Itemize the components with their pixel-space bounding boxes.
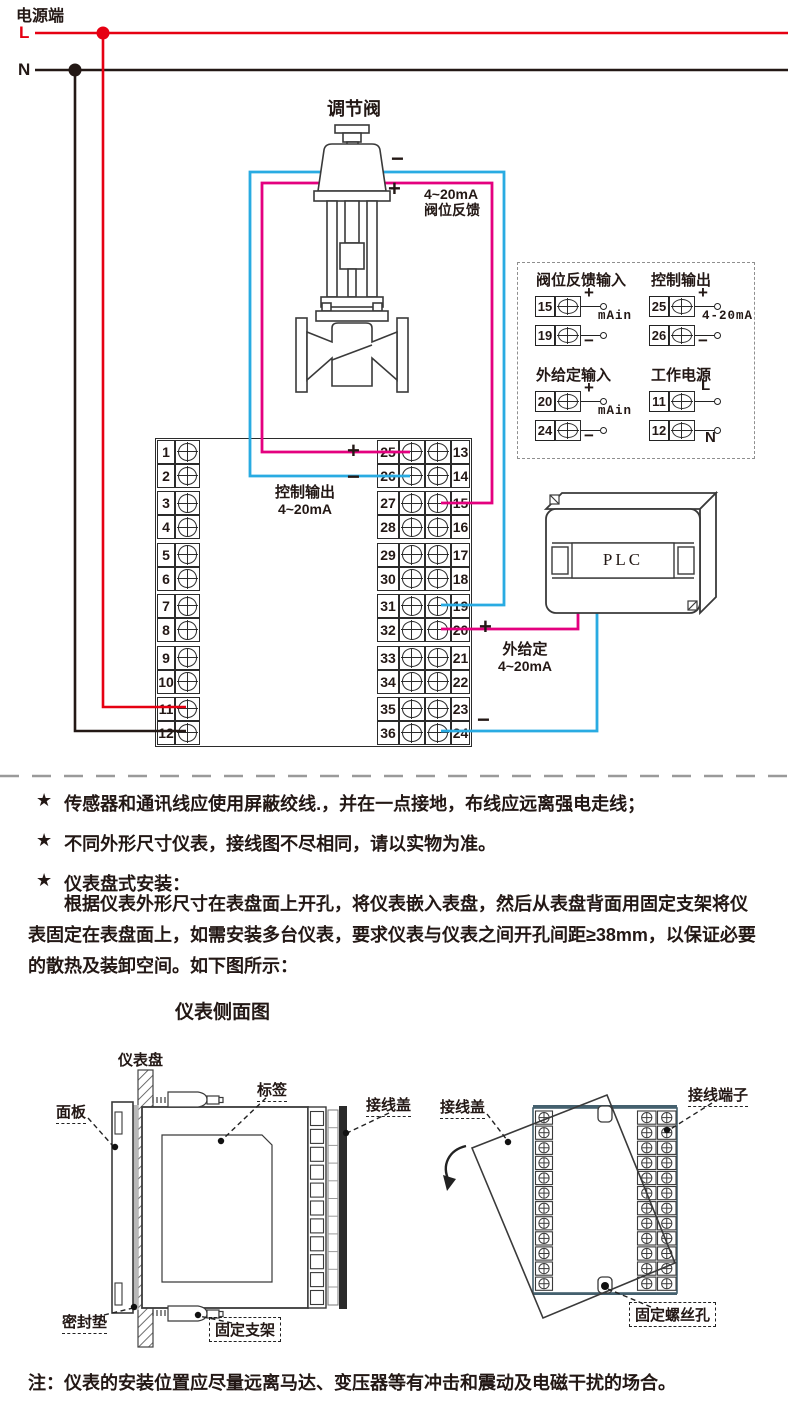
legend-plus-sign: + [584,378,594,398]
screw-terminal-icon [555,391,581,412]
legend-minus-sign: − [698,331,708,351]
screw-terminal-icon [425,464,451,488]
screw-terminal-icon [175,440,200,464]
wire-stub [695,306,714,307]
terminal-strip-squares [311,1112,324,1305]
installation-paragraph: 根据仪表外形尺寸在表盘面上开孔，将仪表嵌入表盘，然后从表盘背面用固定支架将仪表固… [28,889,765,982]
mounting-screw-top [153,1092,223,1107]
external-setpoint-range: 4~20mA [494,658,556,674]
terminal-row: 3321 [377,646,470,670]
plc-screw-slot [688,601,697,610]
screw-hole-dot [601,1282,609,1290]
screw-terminal-icon [175,594,200,618]
terminal-row: 2 [157,464,200,488]
valve-yoke-plate [321,297,383,307]
wire-end-circle [714,398,721,405]
screw-terminal-icon [175,721,200,745]
terminal-number: 12 [157,721,175,745]
junction-dot-l [97,27,110,40]
screw-terminal-icon [399,464,425,488]
legend-title-feedback-input: 阀位反馈输入 [536,269,626,290]
screw-hole-top [598,1106,612,1122]
label-sticker [162,1135,272,1282]
terminal-row: 4 [157,515,200,539]
screw-terminal-icon [425,646,451,670]
wire-stub [581,401,600,402]
legend-row-19: 19 [535,325,607,346]
screw-terminal-icon [425,594,451,618]
terminal-row: 3422 [377,670,470,694]
control-output-minus-sign: − [347,464,360,490]
screw-terminal-icon [399,646,425,670]
valve-coupler [340,243,364,269]
legend-annotation-range: 4-20mA [702,309,753,323]
screw-terminal-icon [175,515,200,539]
terminal-number: 36 [377,721,399,745]
terminal-number: 28 [377,515,399,539]
legend-row-15: 15 [535,296,607,317]
plc-side-block-left [552,547,568,574]
valve-body-detail [332,345,372,360]
note-text: 传感器和通讯线应使用屏蔽绞线.，并在一点接地，布线应远离强电走线； [64,790,645,816]
terminal-number: 35 [377,697,399,721]
valve-stem-top [335,125,369,133]
terminal-number: 32 [377,618,399,642]
legend-terminal-number: 20 [535,391,555,412]
cover-comb [328,1110,338,1305]
wire-end-circle [600,427,607,434]
legend-title-external-input: 外给定输入 [536,364,611,385]
screw-terminal-icon [399,567,425,591]
screw-terminal-icon [555,325,581,346]
terminal-row: 2816 [377,515,470,539]
rotate-arrow [446,1146,466,1181]
legend-row-11: 11 [649,391,721,412]
plc-side-block-right [678,547,694,574]
terminal-number: 18 [451,567,470,591]
terminal-row: 8 [157,618,200,642]
valve-feedback-text: 阀位反馈 [424,202,480,218]
legend-minus-sign: − [584,331,594,351]
screw-terminal-icon [399,618,425,642]
valve-body [307,323,397,386]
terminal-number: 33 [377,646,399,670]
plc-screw-topleft [550,495,559,504]
external-setpoint-title: 外给定 [494,642,556,658]
screw-terminal-icon [425,440,451,464]
terminal-number: 6 [157,567,175,591]
terminal-row: 3018 [377,567,470,591]
terminal-number: 4 [157,515,175,539]
wiring-diagram-page: 电源端 L N 调节阀 − + 4~20mA 阀位反馈 + − 控制输出 4~2… [0,0,790,1420]
terminal-row: 1 [157,440,200,464]
terminal-number: 19 [451,594,470,618]
screw-terminal-icon [555,296,581,317]
valve-yoke-right [367,201,377,297]
external-setpoint-plus-sign: + [479,614,492,640]
terminal-number: 24 [451,721,470,745]
legend-n-label: N [705,429,716,446]
legend-terminal-number: 11 [649,391,669,412]
screw-terminal-icon [669,296,695,317]
terminal-cover-label-left: 接线盖 [366,1094,411,1117]
terminal-legend-box: 阀位反馈输入 控制输出 外给定输入 工作电源 15 19 + − mAin 25… [517,262,755,459]
terminal-row: 2513 [377,440,470,464]
terminal-number: 23 [451,697,470,721]
screw-terminal-icon [669,420,695,441]
screw-terminal-icon [425,721,451,745]
legend-minus-sign: − [584,426,594,446]
terminal-number: 10 [157,670,175,694]
terminal-block-label: 接线端子 [688,1084,748,1107]
screw-terminal-icon [425,491,451,515]
valve-pipe-flange-left [296,318,307,392]
wire-stub [695,401,714,402]
rotate-arrow-head [443,1175,456,1191]
junction-dot-n [69,64,82,77]
plc-screw-bottomright [688,601,697,610]
side-view-drawing [88,1070,389,1347]
screw-terminal-icon [399,721,425,745]
terminal-number: 29 [377,543,399,567]
legend-annotation-main: mAin [598,404,632,418]
control-output-label: 控制输出 4~20mA [266,485,344,517]
valve-minus-sign: − [391,146,404,172]
terminal-column-right: 2513261427152816291730183119322033213422… [377,440,470,745]
terminal-number: 8 [157,618,175,642]
bezel-slot-top [115,1112,122,1134]
terminal-row: 7 [157,594,200,618]
terminal-cover-side [339,1106,347,1309]
terminal-number: 17 [451,543,470,567]
gasket-label: 密封垫 [62,1311,107,1334]
screw-terminal-icon [175,618,200,642]
terminal-number: 21 [451,646,470,670]
valve-actuator [318,144,386,191]
screw-terminal-icon [175,464,200,488]
note-text: 不同外形尺寸仪表，接线图不尽相同，请以实物为准。 [64,830,496,856]
terminal-number: 27 [377,491,399,515]
screw-terminal-icon [175,646,200,670]
screw-terminal-icon [399,670,425,694]
screw-terminal-icon [399,440,425,464]
plc-label: PLC [572,550,674,570]
screw-terminal-icon [399,594,425,618]
screw-terminal-icon [669,325,695,346]
note-item: ★ 不同外形尺寸仪表，接线图不尽相同，请以实物为准。 [36,830,776,856]
bezel-slot-bottom [115,1283,122,1305]
plc-top-face [546,493,716,509]
plc-right-face [700,493,716,613]
terminal-column-left: 123456789101112 [157,440,200,745]
valve-feedback-label: 4~20mA 阀位反馈 [424,186,480,218]
legend-terminal-number: 19 [535,325,555,346]
valve-bonnet-flange [316,311,388,321]
line-n-label: N [18,60,30,80]
terminal-row: 3220 [377,618,470,642]
terminal-row: 3624 [377,721,470,745]
screw-terminal-icon [425,697,451,721]
terminal-cover-label-right: 接线盖 [440,1096,485,1119]
line-l-label: L [19,23,29,43]
terminal-row: 6 [157,567,200,591]
external-setpoint-minus-sign: − [477,707,490,733]
terminal-number: 15 [451,491,470,515]
valve-bolt-right [373,303,382,311]
screw-terminal-icon [399,697,425,721]
terminal-row: 11 [157,697,200,721]
control-output-title: 控制输出 [266,485,344,501]
valve-lower-stem [348,269,356,297]
terminal-number: 5 [157,543,175,567]
star-icon: ★ [36,830,52,856]
external-setpoint-label: 外给定 4~20mA [494,642,556,674]
terminal-number: 1 [157,440,175,464]
terminal-row: 9 [157,646,200,670]
screw-terminal-icon [555,420,581,441]
legend-row-24: 24 [535,420,607,441]
screw-terminal-icon [425,567,451,591]
screw-terminal-icon [399,543,425,567]
legend-row-26: 26 [649,325,721,346]
screw-terminal-icon [425,670,451,694]
terminal-number: 11 [157,697,175,721]
valve-feedback-range: 4~20mA [424,186,480,202]
valve-title: 调节阀 [322,95,386,121]
wire-end-circle [600,332,607,339]
screw-terminal-icon [175,543,200,567]
terminal-row: 3523 [377,697,470,721]
valve-stem [343,133,361,142]
legend-plus-sign: + [584,283,594,303]
valve-inner-stem [345,201,359,243]
terminal-number: 14 [451,464,470,488]
terminal-number: 3 [157,491,175,515]
terminal-row: 2917 [377,543,470,567]
back-view-drawing [443,1095,712,1318]
terminal-number: 13 [451,440,470,464]
terminal-row: 2715 [377,491,470,515]
legend-row-20: 20 [535,391,607,412]
legend-terminal-number: 25 [649,296,669,317]
wire-end-circle [714,332,721,339]
note-item: ★ 传感器和通讯线应使用屏蔽绞线.，并在一点接地，布线应远离强电走线； [36,790,776,816]
terminal-row: 10 [157,670,200,694]
control-output-plus-sign: + [347,438,360,464]
legend-terminal-number: 26 [649,325,669,346]
screw-terminal-icon [425,543,451,567]
valve-stem-base [347,142,358,150]
terminal-number: 26 [377,464,399,488]
valve-bolt-left [322,303,331,311]
terminal-number: 31 [377,594,399,618]
terminal-number: 30 [377,567,399,591]
terminal-number: 7 [157,594,175,618]
terminal-number: 34 [377,670,399,694]
legend-terminal-number: 24 [535,420,555,441]
screw-terminal-icon [399,491,425,515]
terminal-number: 25 [377,440,399,464]
screw-terminal-icon [175,670,200,694]
terminal-number: 9 [157,646,175,670]
valve-plus-sign: + [388,176,401,202]
screw-terminal-icon [425,618,451,642]
star-icon: ★ [36,790,52,816]
screw-terminal-icon [425,515,451,539]
legend-l-label: L [701,377,710,394]
wire-stub [581,306,600,307]
plc-screw-slot [550,495,559,504]
screw-terminal-icon [399,515,425,539]
terminal-number: 22 [451,670,470,694]
terminal-row: 12 [157,721,200,745]
screw-terminal-icon [175,491,200,515]
legend-terminal-number: 12 [649,420,669,441]
terminal-number: 16 [451,515,470,539]
terminal-number: 2 [157,464,175,488]
screw-terminal-icon [175,567,200,591]
fixing-bracket-label: 固定支架 [209,1317,281,1342]
legend-annotation-main: mAin [598,309,632,323]
screw-terminal-icon [669,391,695,412]
terminal-row: 3119 [377,594,470,618]
terminal-number: 20 [451,618,470,642]
legend-terminal-number: 15 [535,296,555,317]
terminal-row: 2614 [377,464,470,488]
terminal-row: 5 [157,543,200,567]
sticker-label: 标签 [257,1079,287,1102]
front-panel-label: 面板 [56,1101,86,1124]
control-output-range: 4~20mA [266,501,344,517]
valve-actuator-band [314,191,390,201]
panel-board-label: 仪表盘 [118,1049,163,1070]
side-view-heading: 仪表侧面图 [175,997,270,1024]
screw-terminal-icon [175,697,200,721]
footnote: 注：仪表的安装位置应尽量远离马达、变压器等有冲击和震动及电磁干扰的场合。 [28,1369,768,1395]
valve-yoke-left [327,201,337,297]
valve-pipe-flange-right [397,318,408,392]
terminal-row: 3 [157,491,200,515]
screw-hole-label: 固定螺丝孔 [629,1302,716,1327]
legend-plus-sign: + [698,283,708,303]
gasket-strip [133,1105,139,1310]
